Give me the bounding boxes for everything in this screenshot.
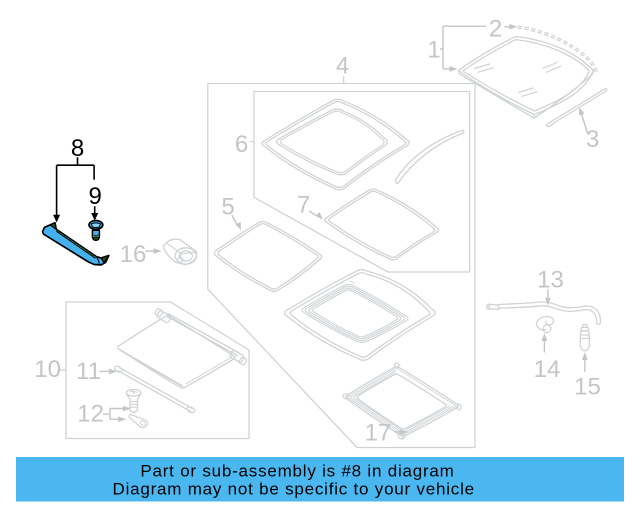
svg-text:2: 2: [489, 15, 502, 42]
svg-text:9: 9: [89, 183, 102, 210]
svg-text:6: 6: [235, 131, 248, 158]
svg-text:Diagram may not be specific to: Diagram may not be specific to your vehi…: [113, 480, 475, 499]
svg-text:10: 10: [34, 356, 61, 383]
svg-text:1: 1: [427, 37, 440, 64]
svg-text:13: 13: [537, 266, 564, 293]
svg-text:15: 15: [574, 374, 601, 401]
svg-text:17: 17: [365, 420, 392, 447]
svg-text:4: 4: [336, 53, 349, 80]
svg-text:8: 8: [71, 135, 84, 162]
svg-text:Part or sub-assembly is #8 in: Part or sub-assembly is #8 in diagram: [140, 461, 454, 480]
svg-text:14: 14: [534, 356, 561, 383]
svg-text:16: 16: [120, 241, 147, 268]
svg-text:5: 5: [221, 194, 234, 221]
svg-text:3: 3: [586, 126, 599, 153]
svg-text:12: 12: [77, 400, 104, 427]
svg-text:11: 11: [76, 358, 101, 385]
svg-text:7: 7: [297, 191, 310, 218]
